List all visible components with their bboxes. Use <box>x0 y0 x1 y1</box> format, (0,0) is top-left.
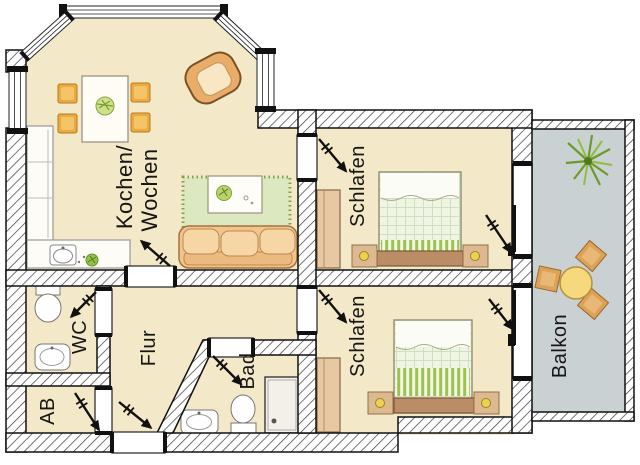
bay-window-left <box>7 66 28 134</box>
toilet-bowl <box>35 294 61 322</box>
wardrobe <box>317 190 340 268</box>
headboard <box>394 398 474 413</box>
wardrobe <box>317 358 340 432</box>
wall-balcony-top <box>532 120 634 129</box>
floor-plan: Kochen/ Wochen Schlafen Schlafen Balkon … <box>0 0 640 465</box>
coffee-table <box>208 176 262 213</box>
lamp <box>471 252 480 261</box>
bay-window-top <box>59 4 228 20</box>
lamp <box>482 399 491 408</box>
coffee-table-plant <box>217 186 232 201</box>
bay-window-right <box>255 48 276 112</box>
wall-balcony-bottom <box>532 412 634 421</box>
room-label-ab: AB <box>37 321 65 465</box>
wall-right-bedrooms <box>512 110 532 433</box>
shower <box>265 377 299 433</box>
wall-left <box>6 128 26 452</box>
door-wc <box>95 287 112 337</box>
double-bed <box>394 320 474 413</box>
lamp <box>376 399 385 408</box>
room-label-flur: Flur <box>138 258 166 438</box>
wall-balcony-right <box>625 120 634 421</box>
room-label-bad: Bad <box>237 281 265 461</box>
room-label-schlafen-bottom: Schlafen <box>347 246 375 426</box>
sofa <box>179 226 297 268</box>
room-label-kochen-line2: Wochen <box>137 100 165 280</box>
room-label-kochen-line1: Kochen/ <box>112 97 140 277</box>
headboard <box>377 251 463 266</box>
room-label-wc: WC <box>69 247 97 427</box>
door-bedroom-top <box>297 133 317 182</box>
double-bed <box>377 172 463 266</box>
room-label-balkon: Balkon <box>549 256 577 436</box>
door-bedroom-bottom <box>297 285 317 335</box>
